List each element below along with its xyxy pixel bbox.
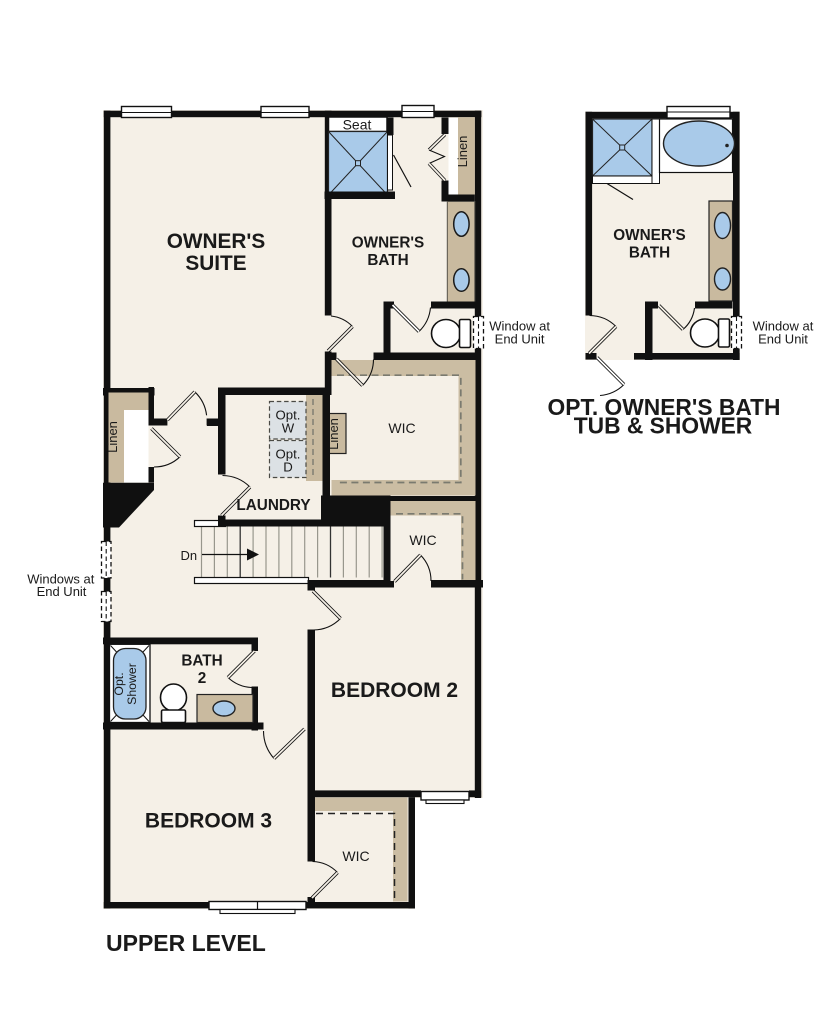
svg-text:End Unit: End Unit <box>758 332 808 347</box>
svg-text:SUITE: SUITE <box>185 252 246 275</box>
svg-text:BEDROOM 3: BEDROOM 3 <box>145 810 272 833</box>
svg-text:Linen: Linen <box>105 421 120 453</box>
svg-text:BATH: BATH <box>629 245 670 262</box>
svg-text:TUB & SHOWER: TUB & SHOWER <box>574 413 753 439</box>
svg-text:Dn: Dn <box>181 548 198 563</box>
svg-text:OWNER'S: OWNER'S <box>167 230 266 253</box>
svg-text:LAUNDRY: LAUNDRY <box>236 497 310 514</box>
svg-text:WIC: WIC <box>342 848 369 864</box>
svg-text:Opt.: Opt. <box>112 672 126 695</box>
svg-text:Seat: Seat <box>343 117 372 133</box>
svg-text:BATH: BATH <box>367 252 408 269</box>
svg-text:OWNER'S: OWNER'S <box>352 235 424 252</box>
svg-text:W: W <box>282 421 295 436</box>
svg-text:D: D <box>283 460 293 475</box>
svg-text:End Unit: End Unit <box>37 584 87 599</box>
svg-text:BATH: BATH <box>181 653 222 670</box>
svg-text:OWNER'S: OWNER'S <box>613 227 685 244</box>
svg-text:WIC: WIC <box>409 532 436 548</box>
svg-text:WIC: WIC <box>388 420 415 436</box>
svg-text:UPPER LEVEL: UPPER LEVEL <box>106 930 266 956</box>
svg-text:End Unit: End Unit <box>495 332 545 347</box>
svg-text:Linen: Linen <box>455 136 470 168</box>
svg-text:BEDROOM 2: BEDROOM 2 <box>331 679 458 702</box>
svg-text:Shower: Shower <box>125 663 139 705</box>
svg-text:2: 2 <box>198 670 207 687</box>
